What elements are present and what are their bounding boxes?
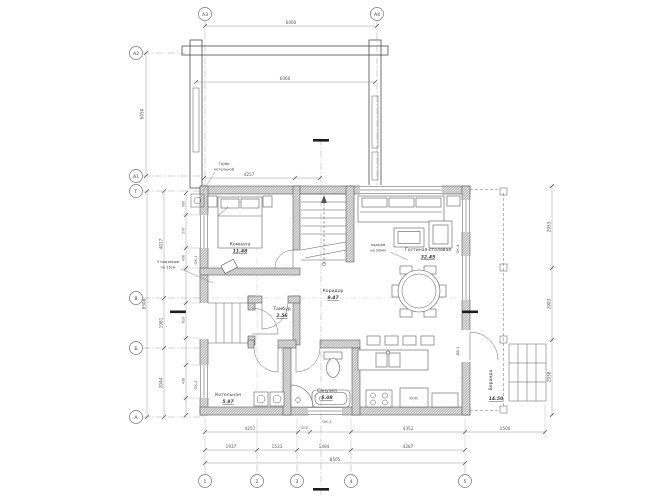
side-table [447, 196, 460, 206]
entry-steps [208, 303, 248, 343]
dim-b2-0: 1937 [226, 444, 237, 449]
room-label-tambour-name: Тамбур [272, 306, 291, 312]
axis-a1: А1 [133, 174, 139, 180]
note-chimney-line1: Труба [217, 162, 229, 166]
sink-bowl [389, 353, 400, 367]
axis-3: 3 [296, 479, 299, 485]
axis-a3: А3 [202, 12, 208, 18]
cabinet [432, 393, 458, 407]
section-mark-icon [313, 488, 329, 491]
floor-plan-page: 6060 6060 6050 4257 4257 1010 4352 1500 … [0, 0, 669, 502]
stove [366, 390, 392, 407]
room-label-boiler-name: Котельная [215, 392, 241, 398]
toilet-tank [324, 352, 342, 359]
dim-carport-left: 6050 [140, 108, 145, 119]
room-label-corridor-area: 9.47 [327, 295, 339, 301]
note-level-line1: подъём [371, 243, 386, 247]
staircase [301, 194, 346, 266]
dining-furniture [392, 266, 446, 317]
fridge-label: ХОЛ. [409, 397, 418, 401]
dim-b2-1: 1533 [272, 444, 283, 449]
axis-2: 2 [256, 479, 259, 485]
boiler-unit [270, 392, 284, 406]
dim-lin-1: 570 [182, 228, 186, 234]
axis-1: 1 [204, 479, 207, 485]
stool [385, 336, 398, 345]
dining-table [398, 270, 440, 312]
dim-carport-top: 6060 [286, 20, 297, 25]
stool [403, 336, 416, 345]
veranda [470, 188, 546, 413]
corner-shower [291, 385, 313, 407]
dim-house-top: 4257 [244, 172, 255, 177]
dim-lin-2: 436 [182, 255, 186, 261]
pillow [241, 199, 259, 208]
room-label-veranda-name: Веранда [488, 369, 494, 390]
dim-b2-2: 1494 [319, 444, 330, 449]
dim-lin-3: 610 [182, 317, 186, 323]
dim-lin-4: 436 [182, 378, 186, 384]
room-label-living-name: Гостиная-столовая [405, 247, 451, 253]
mark-ok3: ОК-3 [323, 420, 332, 424]
section-mark-icon [462, 311, 478, 314]
note-steps-line1: 5 подъёмов [157, 260, 179, 264]
living-furniture [358, 196, 460, 248]
note-chimney-line2: котельной [214, 168, 235, 172]
mark-dv1: ДВ-1 [456, 347, 460, 356]
dim-carport-inner: 6060 [280, 76, 291, 81]
dim-lmid-2: 2044 [159, 377, 164, 388]
axis-4: 4 [350, 479, 353, 485]
pillow [221, 199, 239, 208]
dim-rout-1: 2903 [547, 298, 552, 309]
toilet-bowl [327, 359, 340, 378]
stool [367, 336, 380, 345]
door-veranda [470, 332, 498, 360]
axis-g: Г [135, 189, 138, 195]
dim-b1-1: 1010 [300, 426, 308, 430]
axis-a4: А4 [374, 12, 380, 18]
mark-ok1: ОК-1 [194, 256, 198, 265]
room-label-tambour-area: 2.56 [276, 313, 288, 319]
room-label-boiler-area: 5.97 [222, 399, 234, 405]
room-label-veranda-area: 14.50 [489, 396, 504, 402]
dim-rout-2: 2938 [547, 371, 552, 382]
room-label-bath-name: Санузел [317, 388, 337, 394]
room-label-bedroom-area: 11.48 [233, 249, 248, 255]
room-label-corridor-name: Коридор [323, 288, 344, 294]
axis-5: 5 [464, 479, 467, 485]
nightstand-left [208, 196, 217, 207]
dim-b1-3: 1500 [500, 426, 511, 431]
dim-lmid-0: 4017 [159, 238, 164, 249]
nightstand-right [263, 196, 272, 207]
room-label-living-area: 32.45 [421, 255, 436, 261]
stool [421, 336, 434, 345]
axis-v: В [134, 296, 137, 302]
stair-direction-arrow-icon [321, 195, 327, 203]
boiler-unit [254, 392, 268, 406]
room-label-bath-area: 5.08 [321, 395, 333, 401]
mark-ok4: ОК-4 [456, 244, 460, 254]
axis-a2: А2 [133, 51, 139, 57]
bath-furniture [254, 352, 350, 407]
door-bathroom [296, 348, 320, 372]
note-steps-line2: по 15см [161, 266, 176, 270]
dim-lmid-1: 1981 [159, 317, 164, 328]
veranda-post [500, 406, 507, 413]
floor-plan-drawing: 6060 6060 6050 4257 4257 1010 4352 1500 … [0, 0, 669, 502]
dim-rout-0: 2933 [547, 221, 552, 232]
carport [182, 40, 388, 188]
kitchen-furniture [358, 336, 458, 407]
section-mark-icon [313, 139, 329, 142]
bedroom-furniture [208, 196, 272, 274]
dim-b3-0: 8505 [330, 457, 341, 462]
veranda-steps [509, 344, 546, 401]
dim-b2-3: 4287 [403, 444, 414, 449]
door-boiler [254, 348, 278, 372]
note-level-line2: на 20мм [370, 249, 386, 253]
dim-b1-0: 4257 [245, 426, 256, 431]
door-bedroom [275, 250, 293, 268]
dim-lin-0: 900 [182, 201, 186, 207]
room-label-bedroom-name: Комната [230, 242, 251, 248]
mark-ok2: ОК-2 [194, 381, 198, 390]
section-mark-icon [170, 311, 186, 314]
axis-b: Б [134, 346, 137, 352]
sink-bowl [376, 353, 387, 367]
faucet-icon [386, 351, 389, 354]
dim-b1-2: 4352 [403, 426, 414, 431]
